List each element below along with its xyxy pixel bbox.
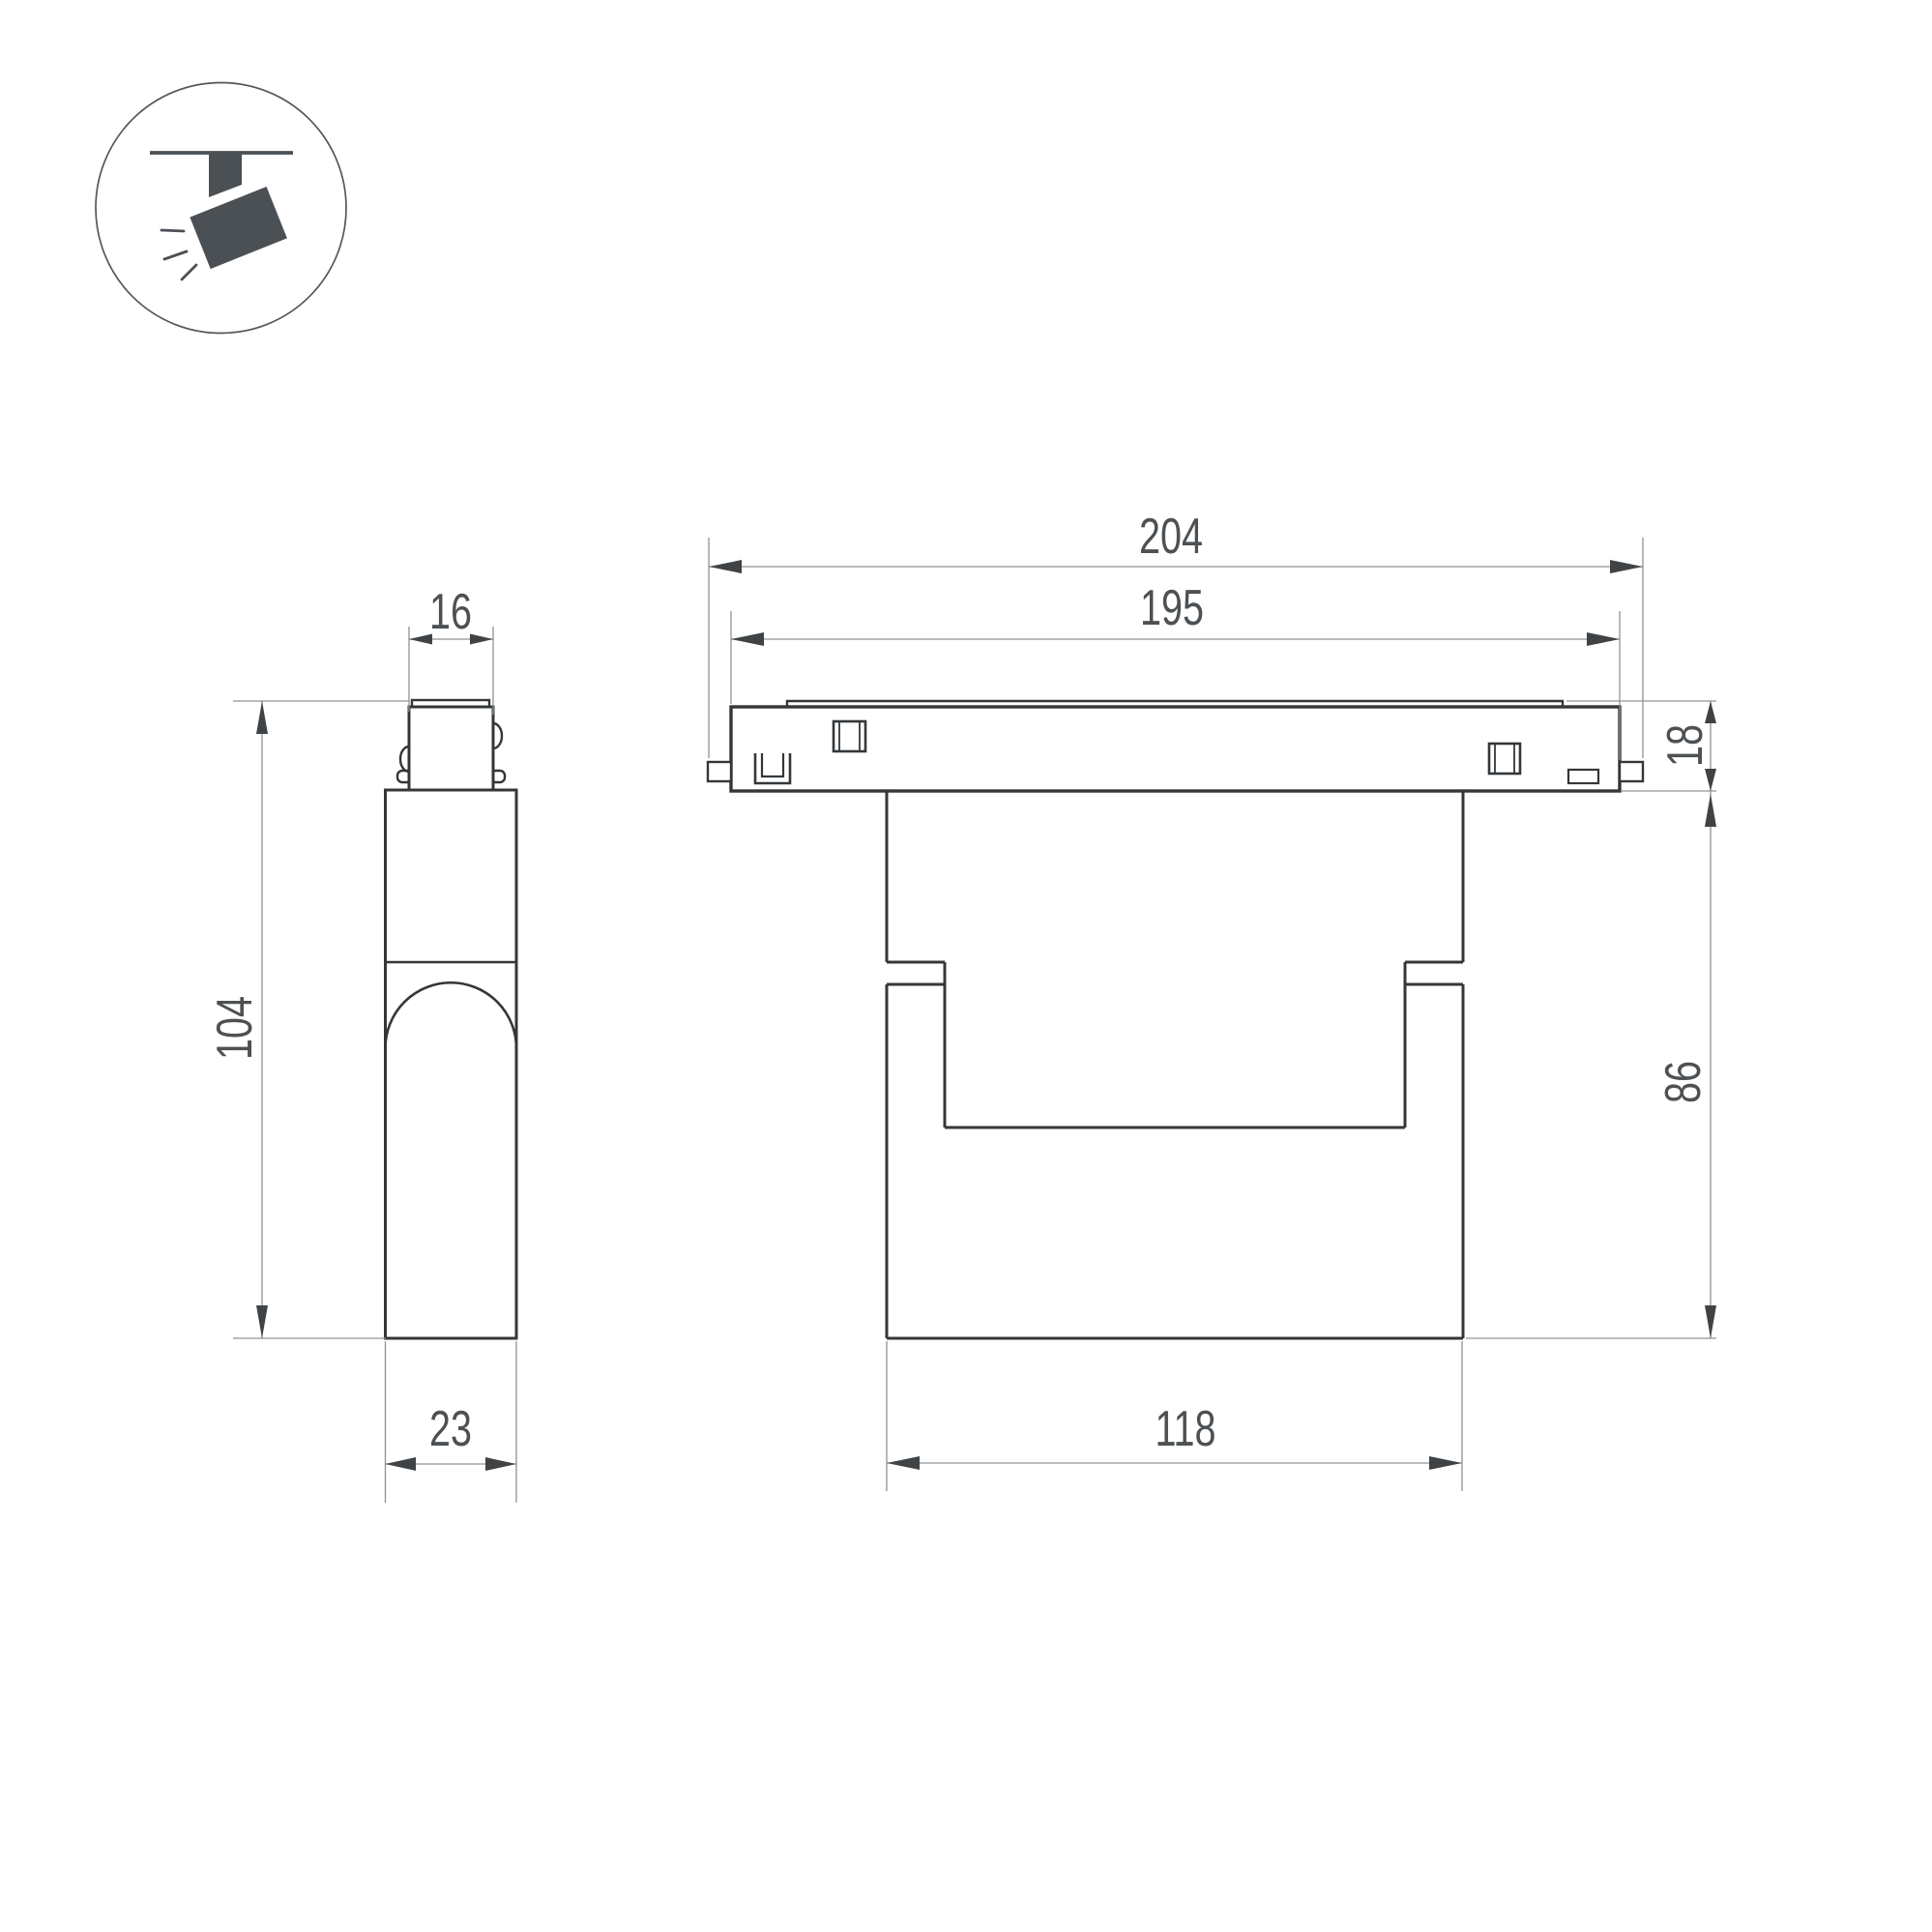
svg-text:16: 16 — [429, 583, 472, 640]
svg-text:23: 23 — [429, 1400, 472, 1457]
svg-text:118: 118 — [1156, 1400, 1216, 1457]
svg-text:104: 104 — [206, 996, 263, 1060]
svg-text:86: 86 — [1654, 1061, 1712, 1103]
svg-text:18: 18 — [1656, 724, 1713, 767]
svg-text:204: 204 — [1139, 508, 1203, 565]
svg-text:195: 195 — [1140, 579, 1204, 636]
